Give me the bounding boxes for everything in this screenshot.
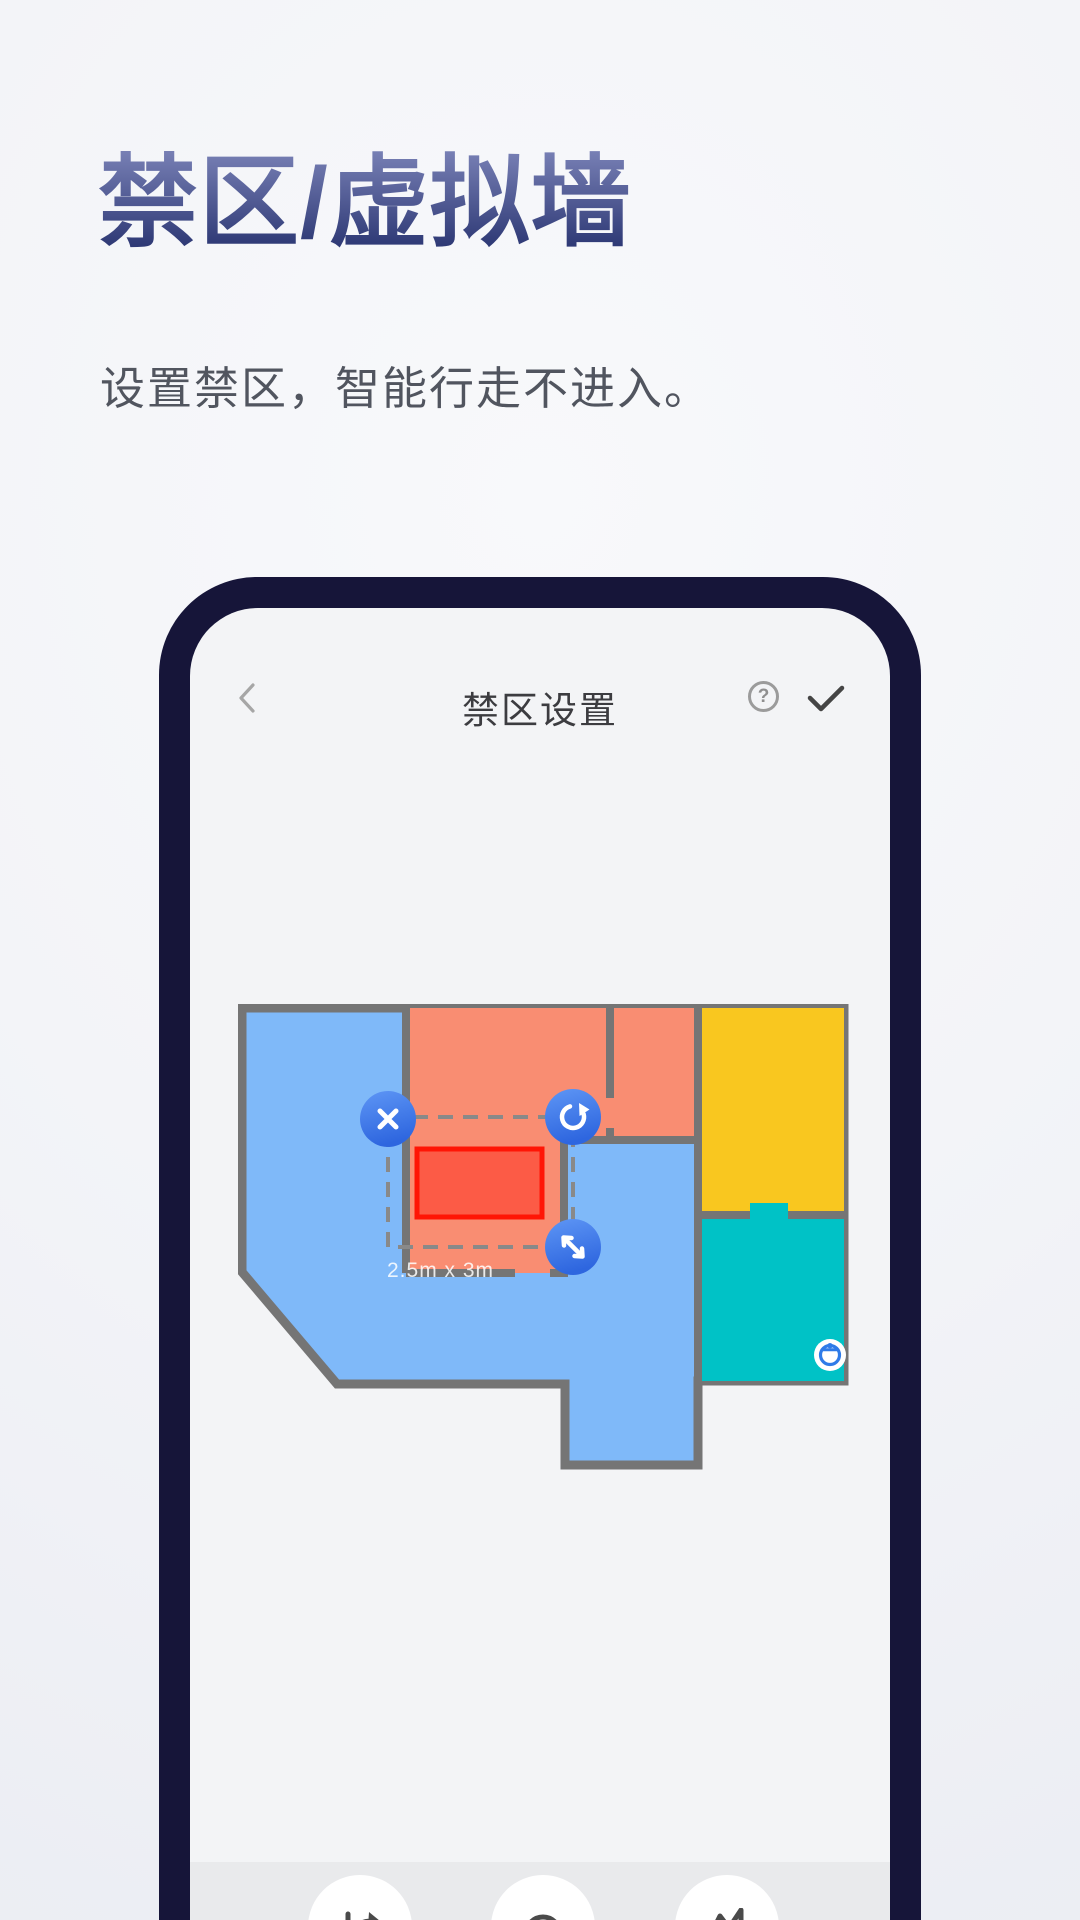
confirm-button[interactable] bbox=[807, 684, 845, 712]
floor-map[interactable]: 2.5m x 3m bbox=[238, 1004, 850, 1470]
zone-delete-handle[interactable] bbox=[360, 1091, 416, 1147]
question-mark-icon: ? bbox=[758, 686, 770, 707]
phone-screen: 禁区设置 ? bbox=[190, 608, 890, 1920]
split-zone-button[interactable] bbox=[308, 1875, 412, 1920]
help-button[interactable]: ? bbox=[748, 681, 779, 712]
split-arrow-icon bbox=[338, 1908, 382, 1920]
page-subtitle: 设置禁区，智能行走不进入。 bbox=[100, 352, 711, 417]
zone-size-label: 2.5m x 3m bbox=[387, 1259, 494, 1282]
screen-title: 禁区设置 bbox=[190, 680, 890, 734]
virtual-wall-button[interactable] bbox=[675, 1875, 779, 1920]
robot-marker bbox=[814, 1339, 846, 1371]
no-go-zone[interactable] bbox=[417, 1149, 542, 1217]
zone-circle-icon bbox=[521, 1908, 565, 1920]
zigzag-wall-icon bbox=[705, 1908, 749, 1920]
teal-door-gap bbox=[750, 1203, 788, 1217]
zone-resize-handle[interactable] bbox=[545, 1219, 601, 1275]
map-rooms bbox=[242, 1008, 844, 1465]
robot-vacuum-icon bbox=[821, 1343, 840, 1365]
page-title: 禁区/虚拟墙 bbox=[98, 148, 632, 258]
zone-button[interactable] bbox=[491, 1875, 595, 1920]
phone-mockup: 禁区设置 ? bbox=[159, 577, 921, 1920]
yellow-room bbox=[698, 1008, 844, 1215]
upper-right-room bbox=[610, 1008, 698, 1140]
checkmark-icon bbox=[810, 688, 842, 709]
zone-rotate-handle[interactable] bbox=[545, 1089, 601, 1145]
bottom-toolbar bbox=[190, 1862, 890, 1920]
